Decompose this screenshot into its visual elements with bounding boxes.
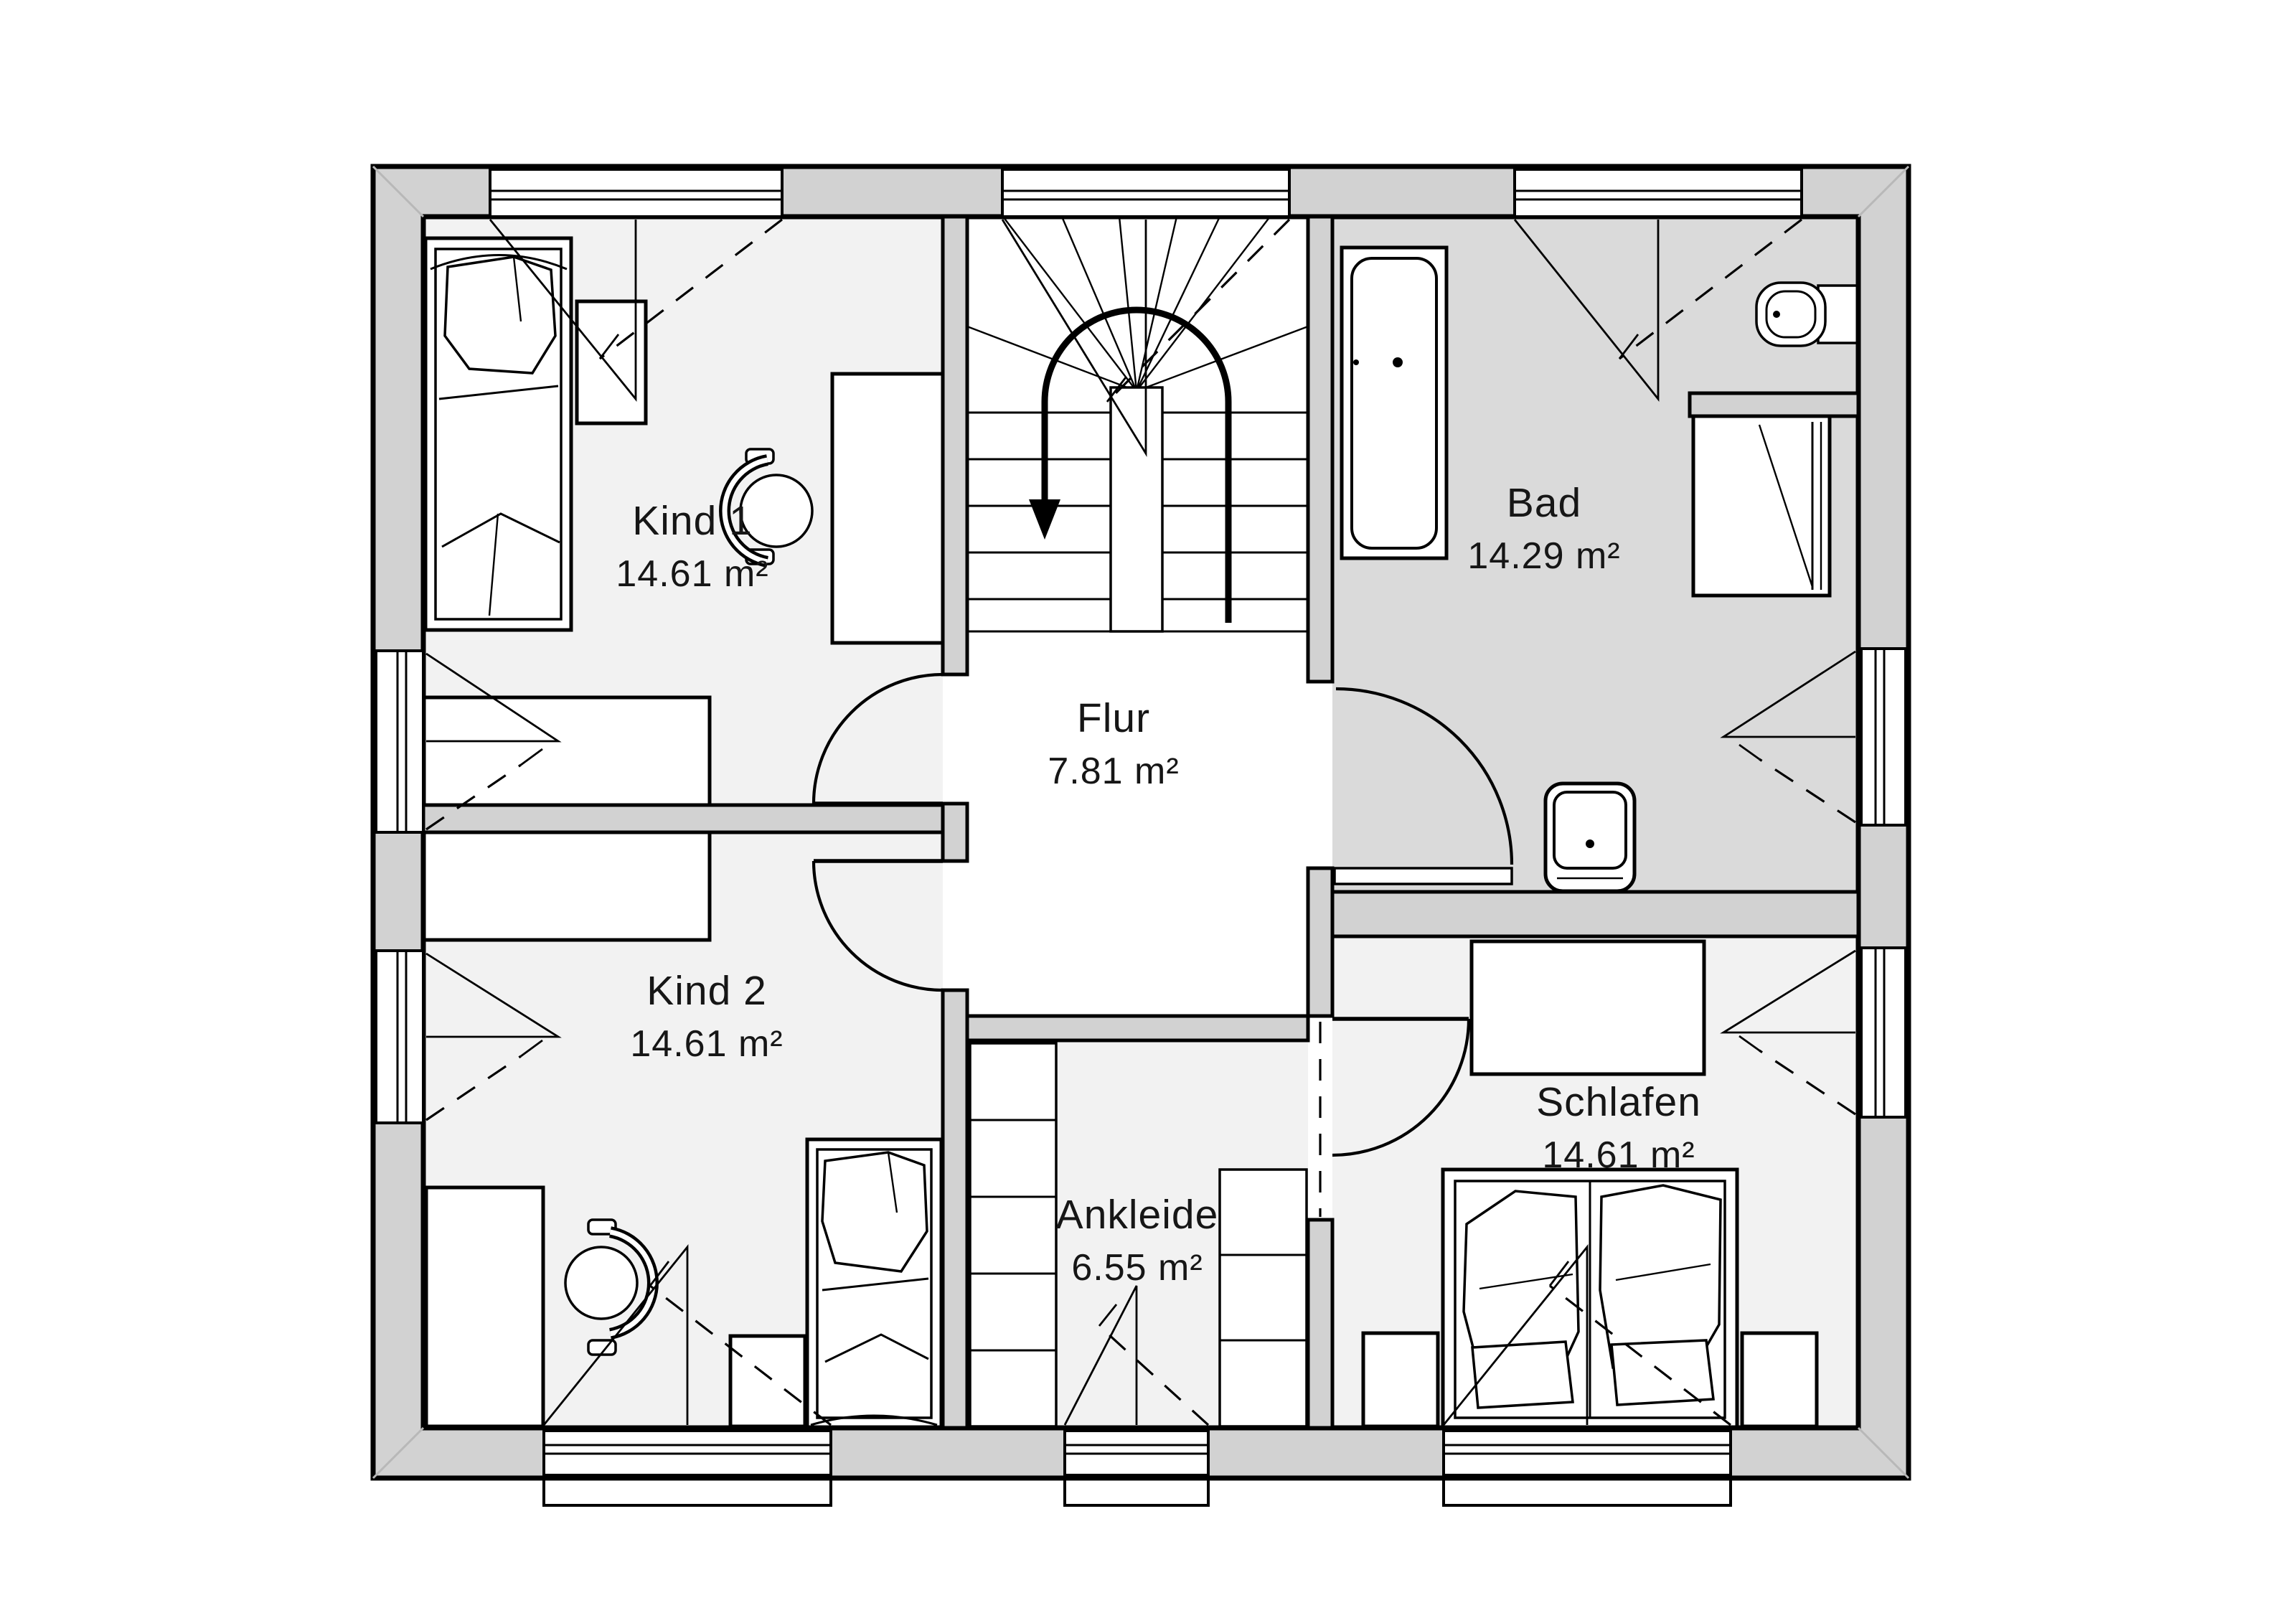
room-label-flur: Flur (1077, 695, 1150, 741)
stair-spine (1111, 387, 1162, 631)
bathtub (1342, 248, 1446, 558)
window-glazing (1002, 169, 1289, 217)
window-glazing (376, 951, 423, 1123)
ankleide-closet-right (1220, 1170, 1307, 1426)
schlafen-sideboard (1472, 941, 1704, 1074)
window-glazing (490, 169, 782, 217)
closet-body (1220, 1170, 1307, 1426)
room-area-ankleide: 6.55 m² (1071, 1247, 1203, 1289)
door-leaf (1335, 868, 1512, 884)
double-bed (1443, 1170, 1737, 1459)
bed-pillow-left (1472, 1342, 1573, 1408)
floor-plan-page: Kind 1 14.61 m² Kind 2 14.61 m² Flur 7.8… (0, 0, 2296, 1623)
bathtub-drain (1393, 357, 1403, 367)
schlafen-nightstand-left (1363, 1333, 1438, 1426)
bathtub-rim (1342, 248, 1446, 558)
room-label-ankleide: Ankleide (1056, 1192, 1219, 1238)
wall-stair-bad (1308, 217, 1332, 682)
window-glazing (1515, 169, 1802, 217)
bathtub-faucet (1353, 359, 1359, 365)
kind2-bed (807, 1139, 941, 1428)
bed-pillow (822, 1152, 927, 1271)
room-area-flur: 7.81 m² (1048, 751, 1179, 792)
wall-bad-schlafen (1332, 892, 1858, 936)
window-outer-sill (544, 1478, 831, 1505)
bed-pillow (445, 257, 555, 373)
wall-pier-flur-east (1308, 868, 1332, 1016)
room-label-kind1: Kind 1 (632, 498, 753, 544)
kind1-sideboard (424, 697, 710, 805)
wall-ankleide-schlafen (1308, 1220, 1332, 1428)
sink-basin (1545, 784, 1634, 891)
kind2-sideboard (424, 832, 710, 940)
schlafen-nightstand-right (1742, 1333, 1817, 1426)
room-area-kind1: 14.61 m² (616, 553, 768, 595)
closet-body (970, 1043, 1056, 1426)
room-label-kind2: Kind 2 (646, 968, 767, 1014)
toilet (1756, 283, 1858, 346)
shower (1693, 416, 1830, 596)
chair-seat (565, 1247, 637, 1319)
room-area-kind2: 14.61 m² (630, 1023, 783, 1065)
kind1-desk (832, 374, 943, 643)
wall-pier-flur-west (943, 804, 967, 861)
sink-drain (1586, 839, 1594, 848)
wall-kind1-stair (943, 217, 967, 674)
toilet-detail (1773, 311, 1780, 318)
window-glazing (376, 651, 423, 832)
kind2-nightstand (730, 1336, 805, 1426)
room-label-schlafen: Schlafen (1536, 1079, 1701, 1125)
kind1-bed (425, 238, 571, 630)
room-area-bad: 14.29 m² (1467, 535, 1620, 577)
room-area-schlafen: 14.61 m² (1542, 1134, 1695, 1176)
window-outer-sill (1444, 1478, 1731, 1505)
floor-plan: Kind 1 14.61 m² Kind 2 14.61 m² Flur 7.8… (0, 0, 2296, 1623)
wall-shower-stub (1690, 393, 1858, 416)
ankleide-closet-left (970, 1043, 1056, 1426)
wall-flur-ankleide (967, 1016, 1308, 1040)
wall-kind1-kind2 (423, 805, 943, 832)
bad-sink (1545, 784, 1634, 891)
kind2-desk (426, 1187, 543, 1426)
room-label-bad: Bad (1507, 480, 1581, 526)
window-outer-sill (1065, 1478, 1208, 1505)
shower-tray (1693, 416, 1830, 596)
wall-kind2-ankleide (943, 990, 967, 1428)
